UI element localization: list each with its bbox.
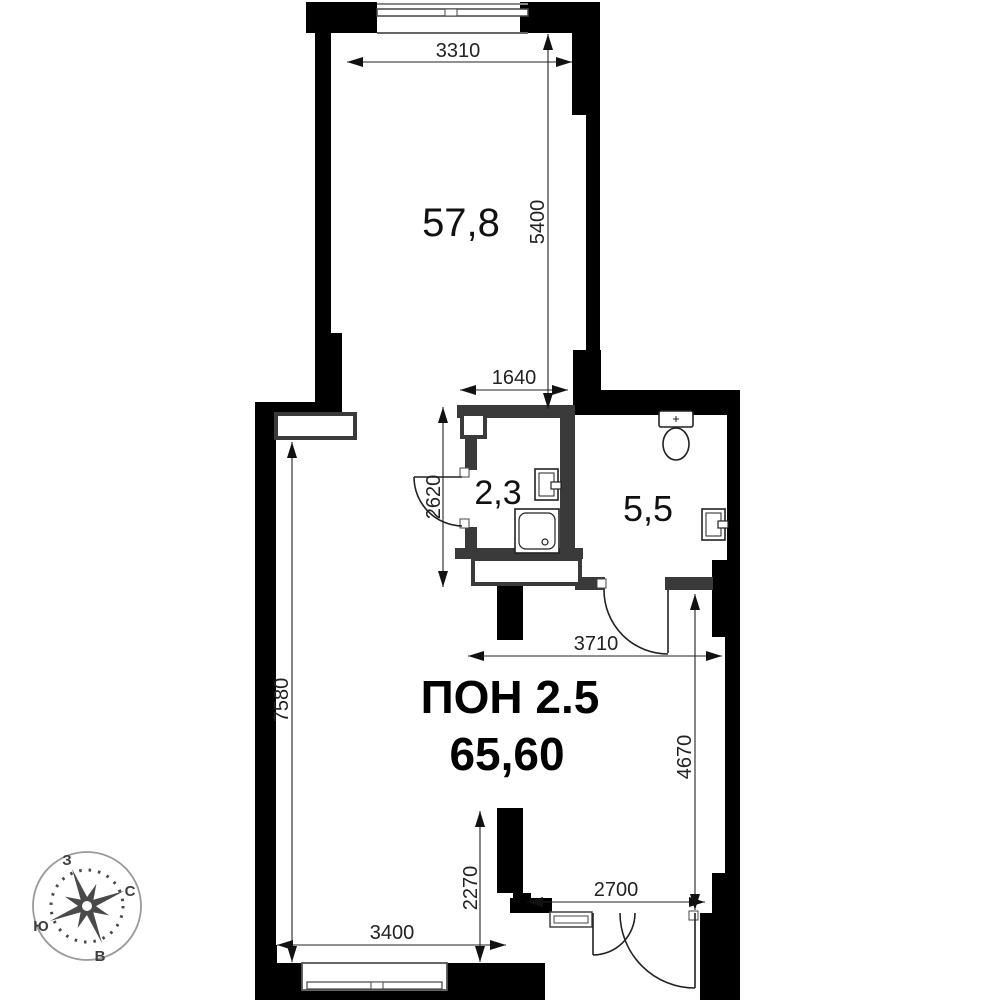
partition-segment — [665, 577, 713, 590]
dim-label: 3400 — [370, 922, 415, 944]
dim-label: 2700 — [594, 879, 639, 901]
dim-label: 7580 — [271, 678, 293, 723]
unit-title: ПОН 2.5 — [421, 671, 600, 723]
wall-segment — [725, 637, 740, 873]
compass-label-south: Ю — [33, 918, 48, 935]
window-bottom — [302, 963, 447, 990]
wall-segment — [586, 108, 600, 360]
toilet-bowl — [663, 428, 689, 460]
sink-wc-icon — [535, 469, 561, 500]
wall-segment — [255, 963, 302, 1000]
wall-segment — [727, 415, 740, 565]
sink-tap — [551, 482, 561, 489]
window-entry — [550, 912, 592, 927]
wall-segment — [315, 333, 342, 405]
dim-label: 3310 — [436, 40, 481, 62]
sink-tap — [718, 521, 728, 528]
window-mullion — [371, 982, 383, 989]
compass-label-east: В — [95, 948, 106, 965]
shaft-box — [276, 414, 355, 438]
wall-segment — [298, 991, 451, 1000]
jamb-marker — [597, 579, 606, 588]
room-area-label-bath: 5,5 — [623, 488, 673, 529]
dim-label: 2620 — [423, 475, 445, 520]
jamb-marker — [460, 468, 469, 477]
sink-bath-icon — [702, 509, 728, 540]
wall-segment — [315, 2, 331, 336]
dim-label: 3710 — [574, 633, 619, 655]
floor-plan-drawing: 3310 5400 1640 2620 7580 — [0, 0, 1000, 1000]
wall-segment — [573, 390, 740, 415]
wall-segment — [497, 586, 523, 640]
wall-segment — [712, 873, 740, 913]
wall-segment — [712, 560, 740, 637]
wall-segment — [572, 2, 600, 115]
room-area-label-top: 57,8 — [422, 201, 500, 245]
shower-inner — [519, 513, 555, 549]
compass-hub — [81, 900, 94, 913]
dim-label: 1640 — [492, 367, 537, 389]
wall-segment — [700, 913, 740, 1000]
dim-label: 4670 — [674, 735, 696, 780]
unit-total-area: 65,60 — [449, 728, 564, 780]
dim-label: 5400 — [527, 200, 549, 245]
shaft-box — [462, 414, 485, 437]
dim-label: 2270 — [460, 866, 482, 911]
shaft-box — [473, 559, 580, 584]
window-mullion — [445, 9, 457, 16]
wall-segment — [447, 963, 545, 1000]
wall-segment — [497, 808, 523, 893]
window-box — [550, 912, 592, 927]
shower-tray-icon — [515, 509, 559, 553]
partition-segment — [465, 437, 477, 470]
room-area-label-wc: 2,3 — [474, 474, 521, 512]
jamb-marker — [689, 911, 698, 920]
compass-label-west: З — [62, 852, 71, 869]
compass-label-north: С — [125, 883, 136, 900]
floor-plan-page: 3310 5400 1640 2620 7580 — [0, 0, 1000, 1000]
shower-drain — [542, 539, 548, 545]
wall-segment — [510, 898, 552, 913]
